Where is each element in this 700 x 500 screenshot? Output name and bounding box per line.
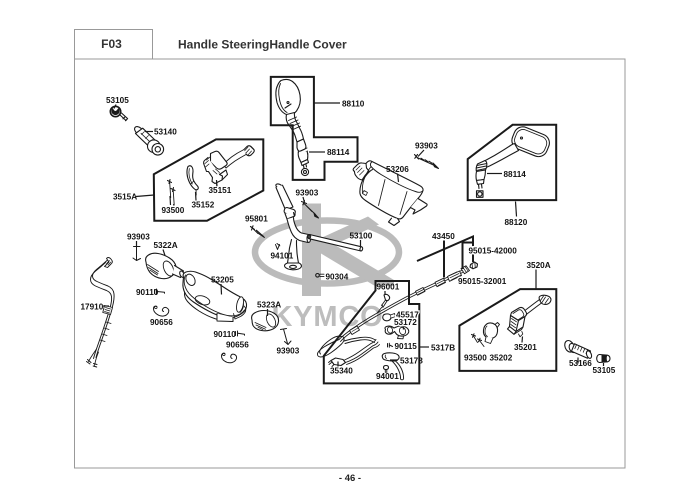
svg-text:KYMCO: KYMCO [272, 301, 384, 333]
svg-text:93903: 93903 [127, 233, 150, 242]
svg-text:53105: 53105 [106, 96, 129, 105]
svg-text:88110: 88110 [342, 100, 365, 109]
svg-text:53166: 53166 [569, 359, 592, 368]
svg-text:95801: 95801 [245, 215, 268, 224]
svg-text:94101: 94101 [271, 252, 294, 261]
svg-text:90110: 90110 [136, 288, 159, 297]
svg-text:43450: 43450 [432, 232, 455, 241]
svg-text:3515A: 3515A [113, 193, 137, 202]
svg-text:93500: 93500 [464, 354, 487, 363]
svg-text:35202: 35202 [490, 354, 513, 363]
svg-text:- 46 -: - 46 - [339, 473, 361, 484]
svg-text:88120: 88120 [505, 218, 528, 227]
svg-text:90110: 90110 [214, 330, 237, 339]
svg-text:5323A: 5323A [257, 301, 281, 310]
svg-text:35152: 35152 [192, 201, 215, 210]
svg-text:93500: 93500 [162, 206, 185, 215]
svg-text:95015-32001: 95015-32001 [458, 277, 507, 286]
svg-text:88114: 88114 [504, 170, 527, 179]
svg-text:53100: 53100 [350, 232, 373, 241]
svg-text:35340: 35340 [330, 367, 353, 376]
svg-text:17910: 17910 [81, 303, 104, 312]
svg-text:35151: 35151 [209, 186, 232, 195]
svg-text:5317B: 5317B [431, 344, 455, 353]
svg-text:53172: 53172 [394, 318, 417, 327]
svg-text:93903: 93903 [415, 142, 438, 151]
svg-text:35201: 35201 [514, 343, 537, 352]
svg-text:53140: 53140 [154, 128, 177, 137]
svg-text:88114: 88114 [327, 148, 350, 157]
svg-text:53206: 53206 [386, 165, 409, 174]
svg-text:F03: F03 [101, 37, 122, 51]
svg-text:93903: 93903 [296, 189, 319, 198]
svg-text:95015-42000: 95015-42000 [469, 247, 518, 256]
svg-text:90656: 90656 [226, 341, 249, 350]
svg-text:96001: 96001 [377, 283, 400, 292]
svg-text:53178: 53178 [400, 357, 423, 366]
svg-text:53105: 53105 [593, 366, 616, 375]
svg-text:90304: 90304 [326, 273, 349, 282]
svg-text:5322A: 5322A [154, 241, 178, 250]
svg-text:93903: 93903 [277, 347, 300, 356]
svg-text:94001: 94001 [376, 372, 399, 381]
svg-text:3520A: 3520A [527, 261, 551, 270]
svg-text:53205: 53205 [211, 276, 234, 285]
svg-text:Handle SteeringHandle Cover: Handle SteeringHandle Cover [178, 38, 347, 52]
svg-text:90656: 90656 [150, 318, 173, 327]
svg-text:90115: 90115 [395, 342, 418, 351]
